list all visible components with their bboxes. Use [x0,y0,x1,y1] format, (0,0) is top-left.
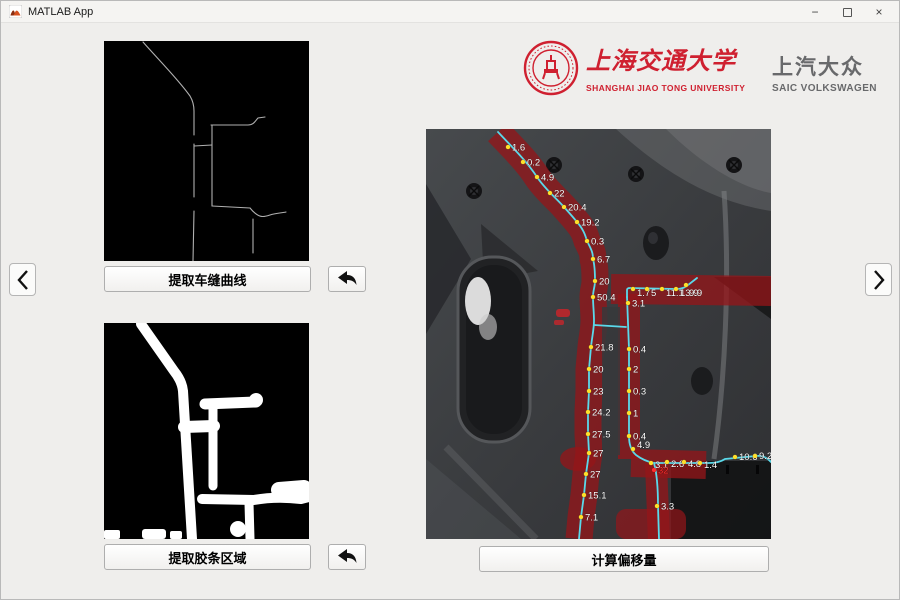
measurement-label: 24.2 [592,408,611,419]
measurement-dot [631,287,636,292]
measurement-dot [674,287,679,292]
measurement-dot [627,389,632,394]
compute-offset-label: 计算偏移量 [591,550,656,569]
measurement-dot [586,410,591,415]
chevron-right-icon [872,269,886,291]
measurement-dot [655,504,660,509]
titlebar: MATLAB App − × [1,1,899,23]
compute-offset-button[interactable]: 计算偏移量 [479,546,769,572]
measurement-dot [627,367,632,372]
measurement-dot [548,191,553,196]
measurement-label: 2 [633,365,638,376]
measurement-label: 9.9 [689,288,702,299]
measurement-label: 15.1 [588,491,607,502]
extract-seam-button[interactable]: 提取车缝曲线 [104,266,311,292]
measurement-label: 1.4 [704,460,717,471]
measurement-dot [506,145,511,150]
measurement-label: 20 [599,277,610,288]
saic-name-cn: 上汽大众 [772,51,892,81]
measurement-dot [582,493,587,498]
close-icon[interactable]: × [865,2,893,22]
measurement-dot [627,347,632,352]
measurement-label: 1 [633,409,638,420]
measurement-dot [587,389,592,394]
measurement-label: 27 [590,470,601,481]
extract-strip-label: 提取胶条区域 [168,548,246,567]
measurement-dot [733,455,738,460]
extract-seam-label: 提取车缝曲线 [168,270,246,289]
measurement-label: 32 [658,466,669,477]
measurement-dot [589,345,594,350]
measurement-dot [575,220,580,225]
chevron-left-icon [16,269,30,291]
measurement-dot [753,454,758,459]
measurement-label: 50.4 [597,293,616,304]
measurement-dot [698,461,703,466]
measurement-label: 3.3 [661,502,674,513]
measurement-label: 4.9 [541,173,554,184]
measurement-label: 0.2 [527,158,540,169]
measurement-dot [682,460,687,465]
measurement-label: 23 [593,387,604,398]
measurement-dot [645,287,650,292]
prev-page-button[interactable] [9,263,36,296]
measurement-label: 1.6 [512,143,525,154]
measurement-dot [627,411,632,416]
measurement-label: 20.4 [568,203,587,214]
measurement-label: 27.5 [592,430,611,441]
measurement-label: 7.1 [585,513,598,524]
undo-icon [335,547,359,567]
seam-curve-preview [104,41,309,261]
measurement-label: 3.1 [632,299,645,310]
measurement-label: 0.4 [633,345,646,356]
measurement-dot [660,287,665,292]
sjtu-name-en: SHANGHAI JIAO TONG UNIVERSITY [586,83,745,93]
measurement-dot [591,295,596,300]
measurement-dot [562,205,567,210]
next-page-button[interactable] [865,263,892,296]
measurement-dot [631,447,636,452]
inspection-image: 1.60.24.92220.419.20.36.72050.421.820232… [426,129,771,539]
measurement-label: 0.3 [591,237,604,248]
matlab-app-icon [9,5,22,18]
minimize-icon[interactable]: − [801,2,829,22]
measurement-label: 5 [651,288,656,299]
measurement-label: 22 [554,189,565,200]
measurement-label: 19.2 [581,218,600,229]
undo-strip-button[interactable] [328,544,366,570]
measurement-dot [585,239,590,244]
measurement-label: 6.7 [597,255,610,266]
measurement-dot [521,160,526,165]
measurement-dot [649,461,654,466]
sjtu-name-cn: 上海交通大学 [586,41,736,76]
measurement-dot [586,432,591,437]
sjtu-logo: 上海交通大学 SHANGHAI JIAO TONG UNIVERSITY [522,37,737,101]
measurement-dot [627,434,632,439]
extract-strip-button[interactable]: 提取胶条区域 [104,544,311,570]
matlab-app-window: MATLAB App − × 上海交通大学 SHANGHAI JIAO TONG… [0,0,900,600]
window-title: MATLAB App [28,6,93,18]
measurement-dot [684,283,689,288]
measurement-dot [535,175,540,180]
measurement-label: 20 [593,365,604,376]
window-controls: − × [801,1,893,23]
measurement-dot [579,515,584,520]
measurement-label: 4.9 [637,440,650,451]
measurement-dot [593,279,598,284]
measurement-dot [587,451,592,456]
maximize-icon[interactable] [833,2,861,22]
undo-seam-button[interactable] [328,266,366,292]
measurement-dot [665,460,670,465]
measurement-label: 21.8 [595,343,614,354]
sjtu-seal-icon [522,39,580,97]
undo-icon [335,269,359,289]
measurement-dot [587,367,592,372]
strip-region-preview [104,323,309,539]
measurement-label: 0.3 [633,387,646,398]
saic-name-en: SAIC VOLKSWAGEN [772,83,892,94]
measurement-dot [652,468,657,473]
measurement-dot [584,472,589,477]
saic-volkswagen-logo: 上汽大众 SAIC VOLKSWAGEN [772,51,892,94]
measurement-dot [626,301,631,306]
measurement-dot [591,257,596,262]
measurement-label: 9.2 [759,451,771,462]
measurement-label: 27 [593,449,604,460]
